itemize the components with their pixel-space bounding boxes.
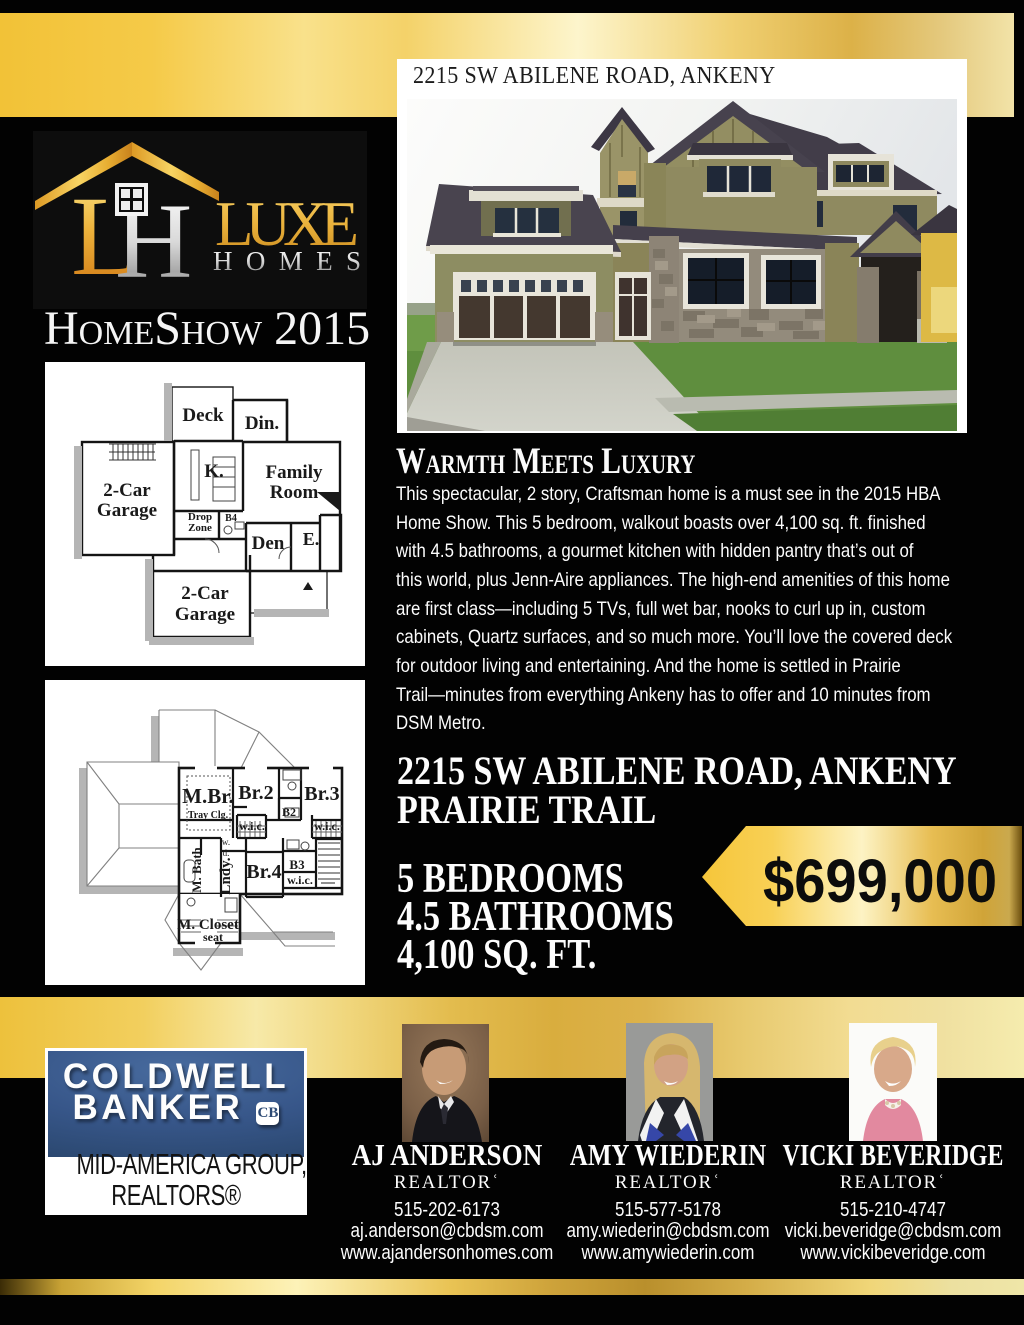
- svg-text:2-Car: 2-Car: [103, 480, 151, 501]
- svg-text:Lndy.: Lndy.: [218, 857, 234, 894]
- svg-text:Den: Den: [252, 533, 285, 554]
- svg-text:Tray Clg.: Tray Clg.: [188, 810, 229, 821]
- svg-text:seat: seat: [203, 930, 223, 944]
- svg-text:Garage: Garage: [97, 500, 157, 521]
- svg-text:B4: B4: [225, 513, 237, 524]
- svg-text:Br.3: Br.3: [304, 783, 339, 805]
- svg-text:Deck: Deck: [182, 405, 224, 426]
- svg-text:Br.4: Br.4: [246, 861, 281, 883]
- svg-text:2-Car: 2-Car: [181, 583, 229, 604]
- svg-text:w.i.c.: w.i.c.: [287, 873, 313, 887]
- svg-text:M. Bath: M. Bath: [189, 846, 204, 892]
- svg-text:w.i.c.: w.i.c.: [239, 819, 265, 833]
- svg-text:Din.: Din.: [245, 413, 279, 434]
- svg-text:w.: w.: [222, 837, 230, 847]
- svg-text:Zone: Zone: [188, 522, 212, 534]
- svg-text:d.: d.: [223, 848, 230, 858]
- svg-text:$699,000: $699,000: [763, 848, 997, 916]
- svg-text:Br.2: Br.2: [238, 782, 273, 804]
- svg-text:B3: B3: [289, 857, 305, 872]
- svg-text:w.i.c.: w.i.c.: [314, 819, 340, 833]
- svg-text:Garage: Garage: [175, 604, 235, 625]
- svg-text:Room: Room: [270, 482, 319, 503]
- svg-text:Family: Family: [266, 462, 323, 483]
- svg-text:K.: K.: [204, 461, 224, 482]
- svg-text:M.Br.: M.Br.: [182, 784, 234, 808]
- svg-text:E.: E.: [303, 529, 320, 549]
- svg-text:B2: B2: [282, 805, 296, 819]
